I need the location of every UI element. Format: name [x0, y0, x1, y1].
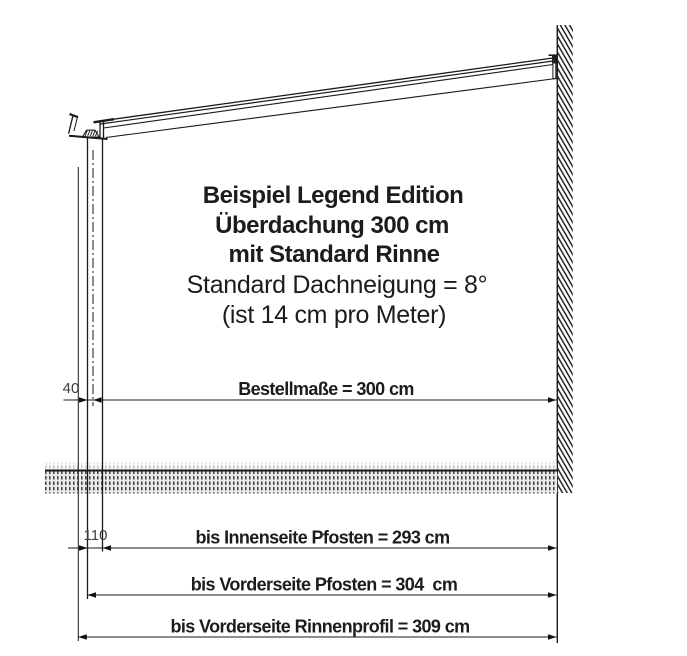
roof-mid-line [104, 65, 554, 129]
gutter-lip-cap [70, 114, 79, 117]
arrowhead-right-icon [548, 634, 557, 640]
arrowhead-right-icon [548, 545, 557, 551]
arrowhead-left-icon [78, 634, 87, 640]
ground-hatch-fill [45, 472, 557, 494]
title-line-2: Überdachung 300 cm [215, 212, 449, 239]
roof-top-inner-line [101, 61, 554, 124]
technical-drawing-page: 40 Bestellmaße = 300 cm 110 bis Innensei… [0, 0, 687, 656]
ground-strip [45, 463, 557, 494]
dimension-vorderseite-rinnenprofil: bis Vorderseite Rinnenprofil = 309 cm [78, 617, 556, 640]
gutter-profile [69, 114, 114, 139]
dimension-40-label: 40 [63, 380, 80, 397]
title-line-1: Beispiel Legend Edition [203, 182, 464, 209]
wall-hatch-fill [557, 25, 573, 493]
arrowhead-left-icon [88, 592, 97, 598]
bestellmass-label: Bestellmaße = 300 cm [238, 379, 414, 399]
title-line-3: mit Standard Rinne [228, 241, 439, 268]
bracket-block [552, 56, 557, 64]
innenseite-pfosten-label: bis Innenseite Pfosten = 293 cm [195, 528, 449, 548]
arrowhead-right-icon [79, 397, 88, 403]
arrowhead-right-icon [79, 545, 88, 551]
roof-top-line [101, 58, 554, 121]
arrowhead-left-icon [93, 397, 102, 403]
arrowhead-right-icon [548, 397, 557, 403]
dimension-bestellmass: 40 Bestellmaße = 300 cm [63, 379, 557, 403]
arrowhead-right-icon [548, 592, 557, 598]
diagram-canvas: 40 Bestellmaße = 300 cm 110 bis Innensei… [0, 0, 687, 656]
title-line-5: (ist 14 cm pro Meter) [222, 301, 446, 329]
dimension-innenseite-pfosten: 110 bis Innenseite Pfosten = 293 cm [68, 527, 557, 551]
vorderseite-pfosten-label: bis Vorderseite Pfosten = 304 cm [191, 575, 458, 595]
house-wall [557, 25, 573, 643]
roof-bottom-line [106, 79, 556, 138]
title-line-4: Standard Dachneigung = 8° [187, 271, 488, 299]
roof-panel [101, 58, 556, 138]
post [78, 138, 102, 641]
title-block: Beispiel Legend Edition Überdachung 300 … [187, 182, 488, 329]
ground-fuzzy-edge [45, 463, 557, 471]
gutter-lip-outer [69, 116, 73, 133]
vorderseite-rinnenprofil-label: bis Vorderseite Rinnenprofil = 309 cm [170, 617, 469, 637]
gutter-lip-inner [74, 118, 77, 132]
dimension-110-label: 110 [84, 527, 108, 544]
dimension-vorderseite-pfosten: bis Vorderseite Pfosten = 304 cm [88, 575, 557, 598]
arrowhead-left-icon [103, 545, 112, 551]
